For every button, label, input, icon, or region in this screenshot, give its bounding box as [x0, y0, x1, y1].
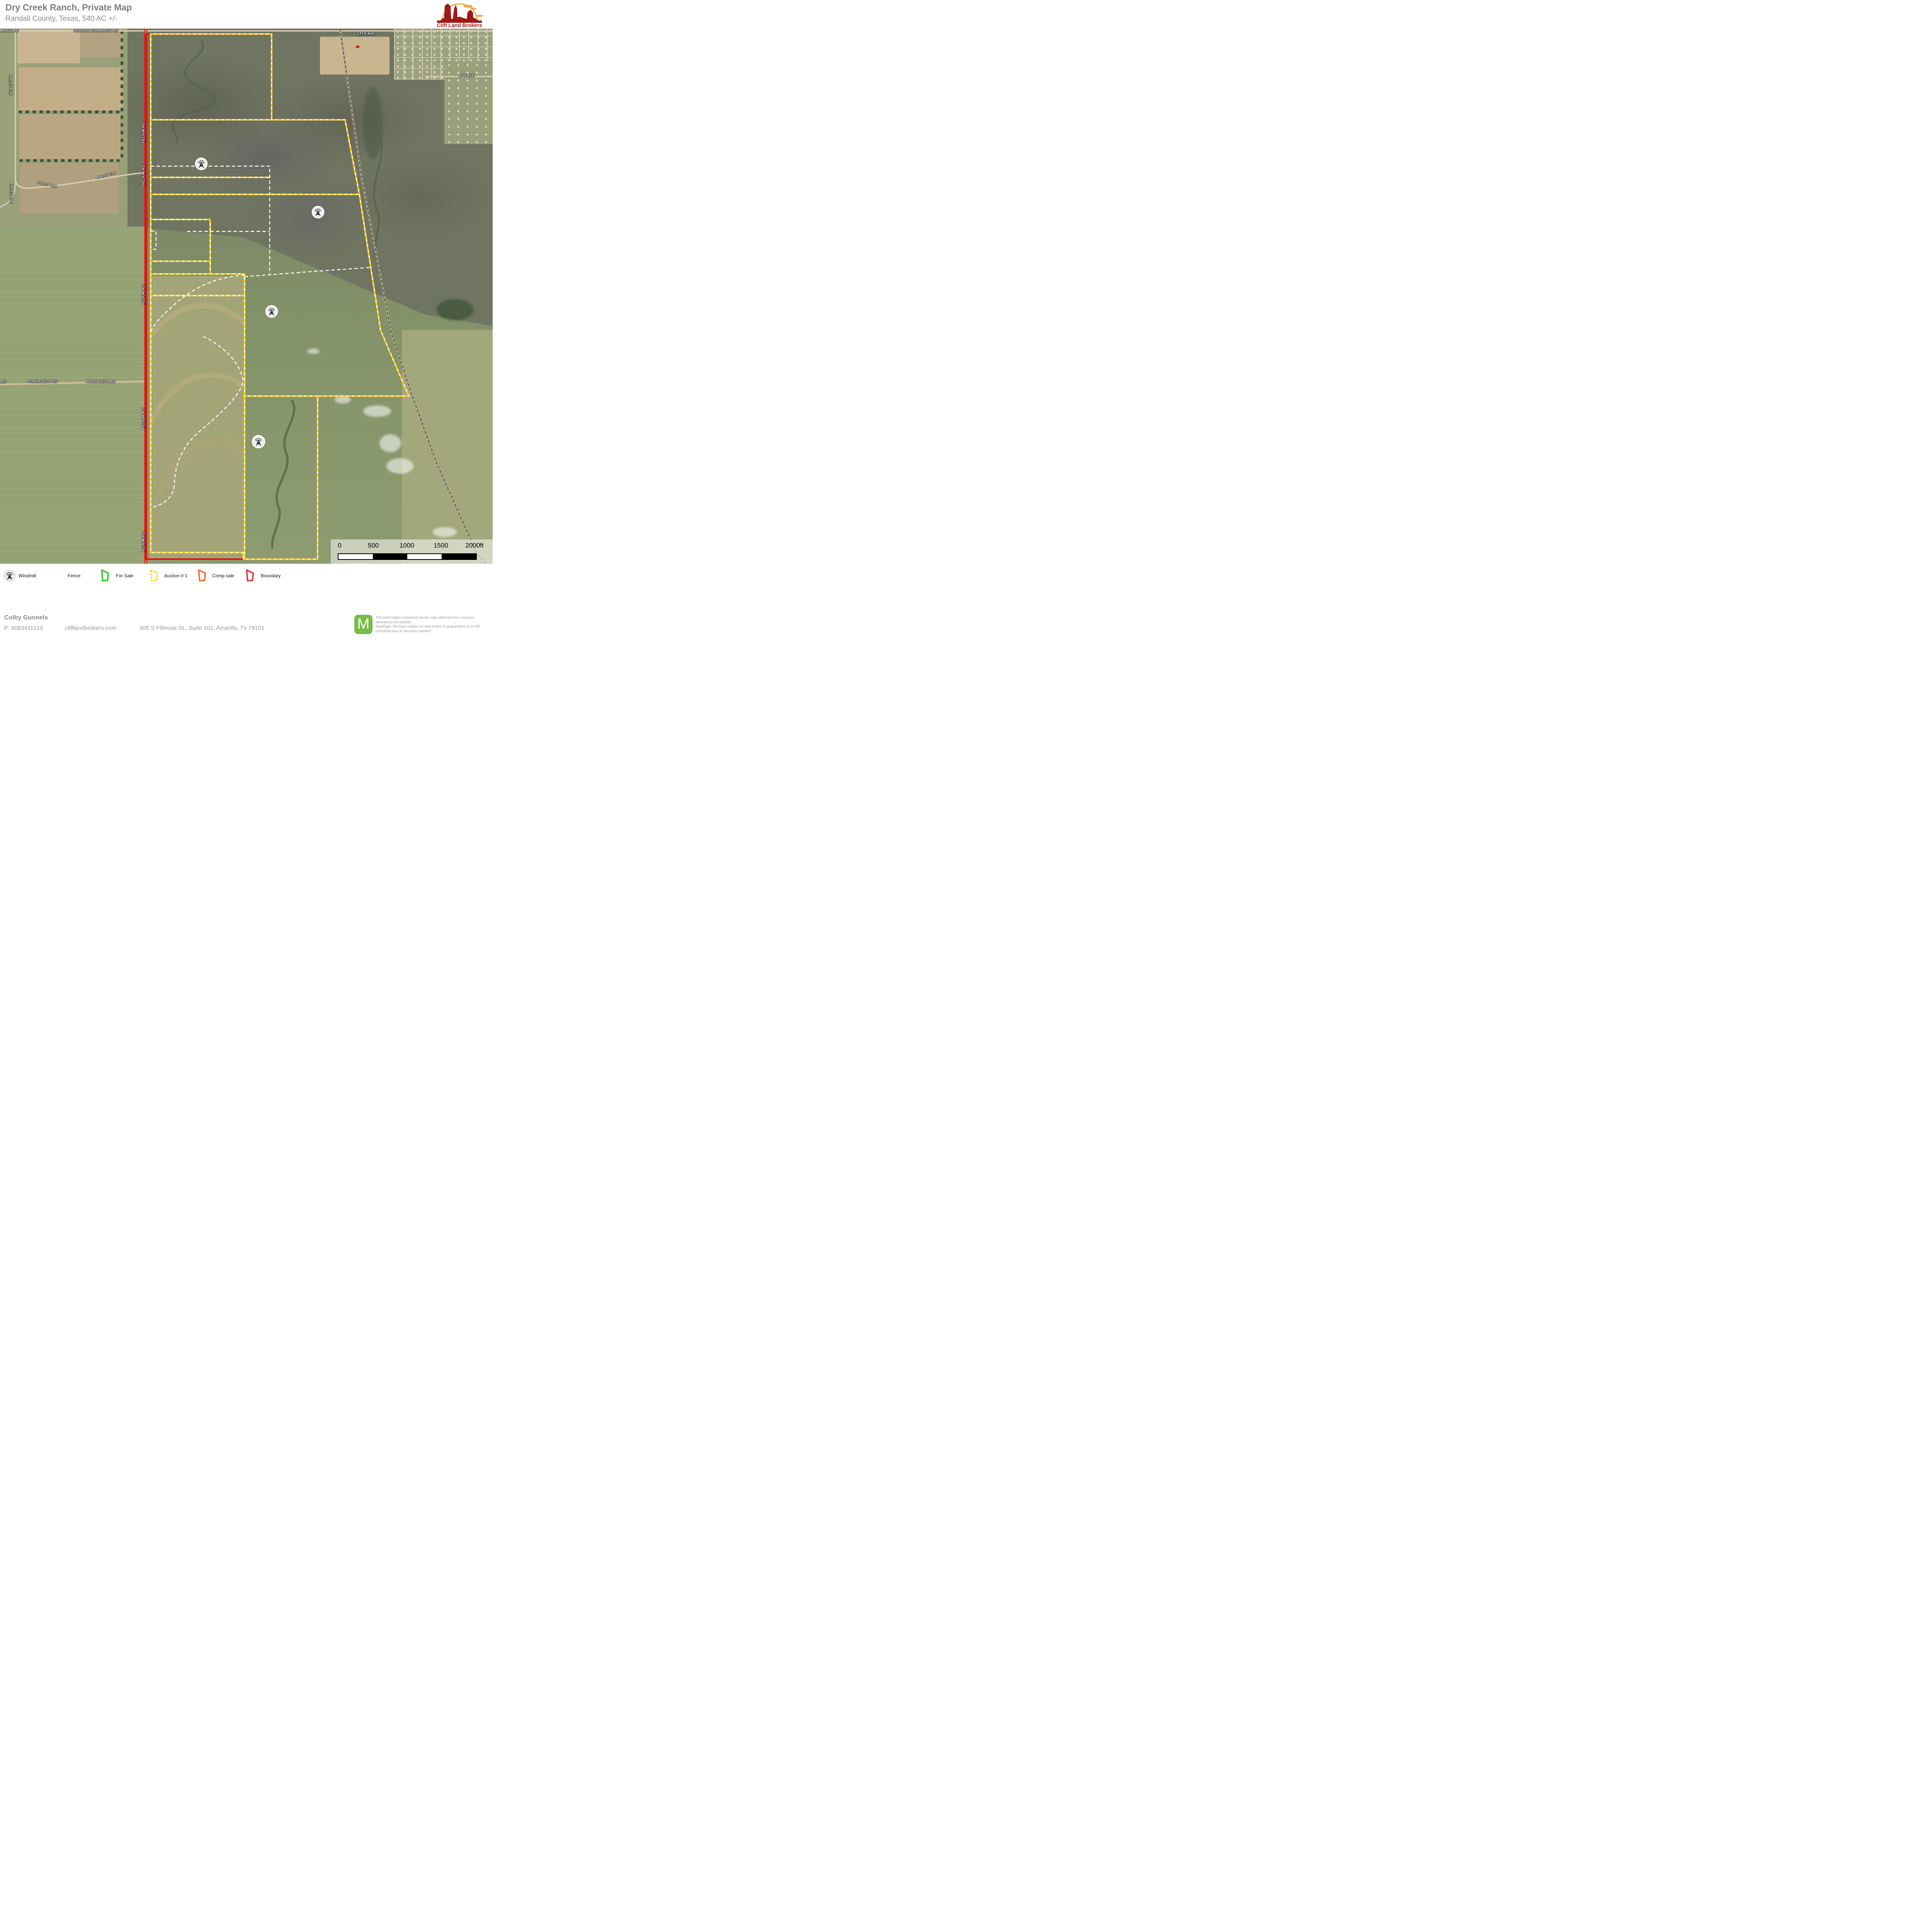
map-overlay	[0, 29, 493, 564]
road-label-helium-rd: HELIUM RD	[141, 283, 145, 306]
legend-item-fence: Fence	[57, 564, 100, 588]
boundary-red-line	[146, 34, 409, 559]
legend-item-auction-1: Auction # 1	[149, 564, 196, 588]
legend: Windmill Fence For Sale Auction # 1 Comp…	[0, 564, 493, 588]
road-label-cummings-partial: MINGS RD	[0, 29, 19, 32]
scale-tick: 2000ft	[465, 542, 483, 549]
clift-land-brokers-logo: Clift Land Brokers	[430, 0, 489, 28]
website-link[interactable]: cliftlandbrokers.com	[65, 625, 116, 631]
scale-tick: 0	[338, 542, 341, 549]
road-label-helium-rd: HELIUM RD	[141, 531, 145, 554]
fence-icon	[57, 570, 67, 582]
legend-label: Windmill	[19, 573, 36, 578]
disclaimer-line: completeness or accuracy thereof.	[376, 629, 492, 634]
windmill-marker	[252, 435, 265, 448]
for-sale-icon	[100, 569, 110, 582]
road-label-13th-ave: 13TH AVE	[357, 32, 375, 36]
scale-bar: 0 500 1000 1500 2000ft	[331, 539, 493, 564]
disclaimer: The information contained herein was obt…	[376, 616, 492, 633]
legend-label: Fence	[68, 573, 80, 578]
road-label-pondaseta-partial: RD	[1, 379, 6, 383]
mapright-logo: M	[354, 615, 372, 634]
scale-bar-segments	[338, 553, 477, 560]
boundary-icon	[245, 569, 255, 582]
scale-tick: 1500	[434, 542, 448, 549]
legend-item-windmill: Windmill	[3, 564, 53, 588]
office-address: 905 S Fillmore St., Suite 102, Amarillo,…	[139, 625, 264, 631]
logo-mesa-icon	[430, 0, 489, 23]
fence-lines	[151, 166, 370, 508]
page-subtitle: Randall County, Texas, 540 AC +/-	[5, 15, 117, 23]
windmill-marker	[312, 206, 324, 218]
road-label-pondaseta: PONDASETA RD	[28, 379, 57, 383]
scale-tick: 1000	[400, 542, 414, 549]
auction-icon	[149, 569, 159, 582]
disclaimer-line: MapRight Services makes no warranties or…	[376, 624, 492, 629]
scale-tick: 500	[368, 542, 379, 549]
windmill-marker	[266, 306, 277, 317]
disclaimer-line: deemed to be reliable.	[376, 620, 492, 625]
page: Dry Creek Ranch, Private Map Randall Cou…	[0, 0, 493, 638]
legend-label: Boundary	[261, 573, 281, 578]
railroad	[340, 29, 486, 564]
windmill-marker	[196, 158, 207, 170]
agent-phone: P: 8063411515	[4, 625, 43, 631]
road-label-haley-cir: HALEY CIR	[10, 183, 14, 209]
legend-item-boundary: Boundary	[245, 564, 291, 588]
road-label-helium-rd: HELIUM RD	[141, 121, 145, 144]
roads	[0, 29, 493, 564]
page-title: Dry Creek Ranch, Private Map	[5, 2, 132, 13]
road-label-pondaseta: PONDASETA RD	[86, 379, 115, 383]
legend-label: Auction # 1	[164, 573, 187, 578]
legend-item-comp-sale: Comp sale	[197, 564, 243, 588]
legend-item-for-sale: For Sale	[100, 564, 146, 588]
road-label-haley-cir: HALEY CIR	[9, 75, 13, 100]
road-label-helium-rd: HELIUM RD	[141, 407, 145, 430]
road-label-gordon-cummings: GORDON CUMMINGS RD	[73, 29, 118, 32]
legend-label: For Sale	[116, 573, 133, 578]
agent-name: Colby Gunnels	[4, 614, 48, 621]
legend-label: Comp sale	[212, 573, 234, 578]
road-label-helium-rd: HELIUM RD	[141, 163, 145, 187]
road-label-8th-ave: 8TH AVE	[459, 73, 474, 77]
logo-text: Clift Land Brokers	[430, 22, 489, 28]
aerial-map: MINGS RD GORDON CUMMINGS RD 13TH AVE 8TH…	[0, 29, 493, 564]
windmill-icon	[3, 569, 16, 582]
creek-lines	[172, 41, 382, 549]
disclaimer-line: The information contained herein was obt…	[376, 616, 492, 620]
comp-sale-icon	[197, 569, 207, 582]
